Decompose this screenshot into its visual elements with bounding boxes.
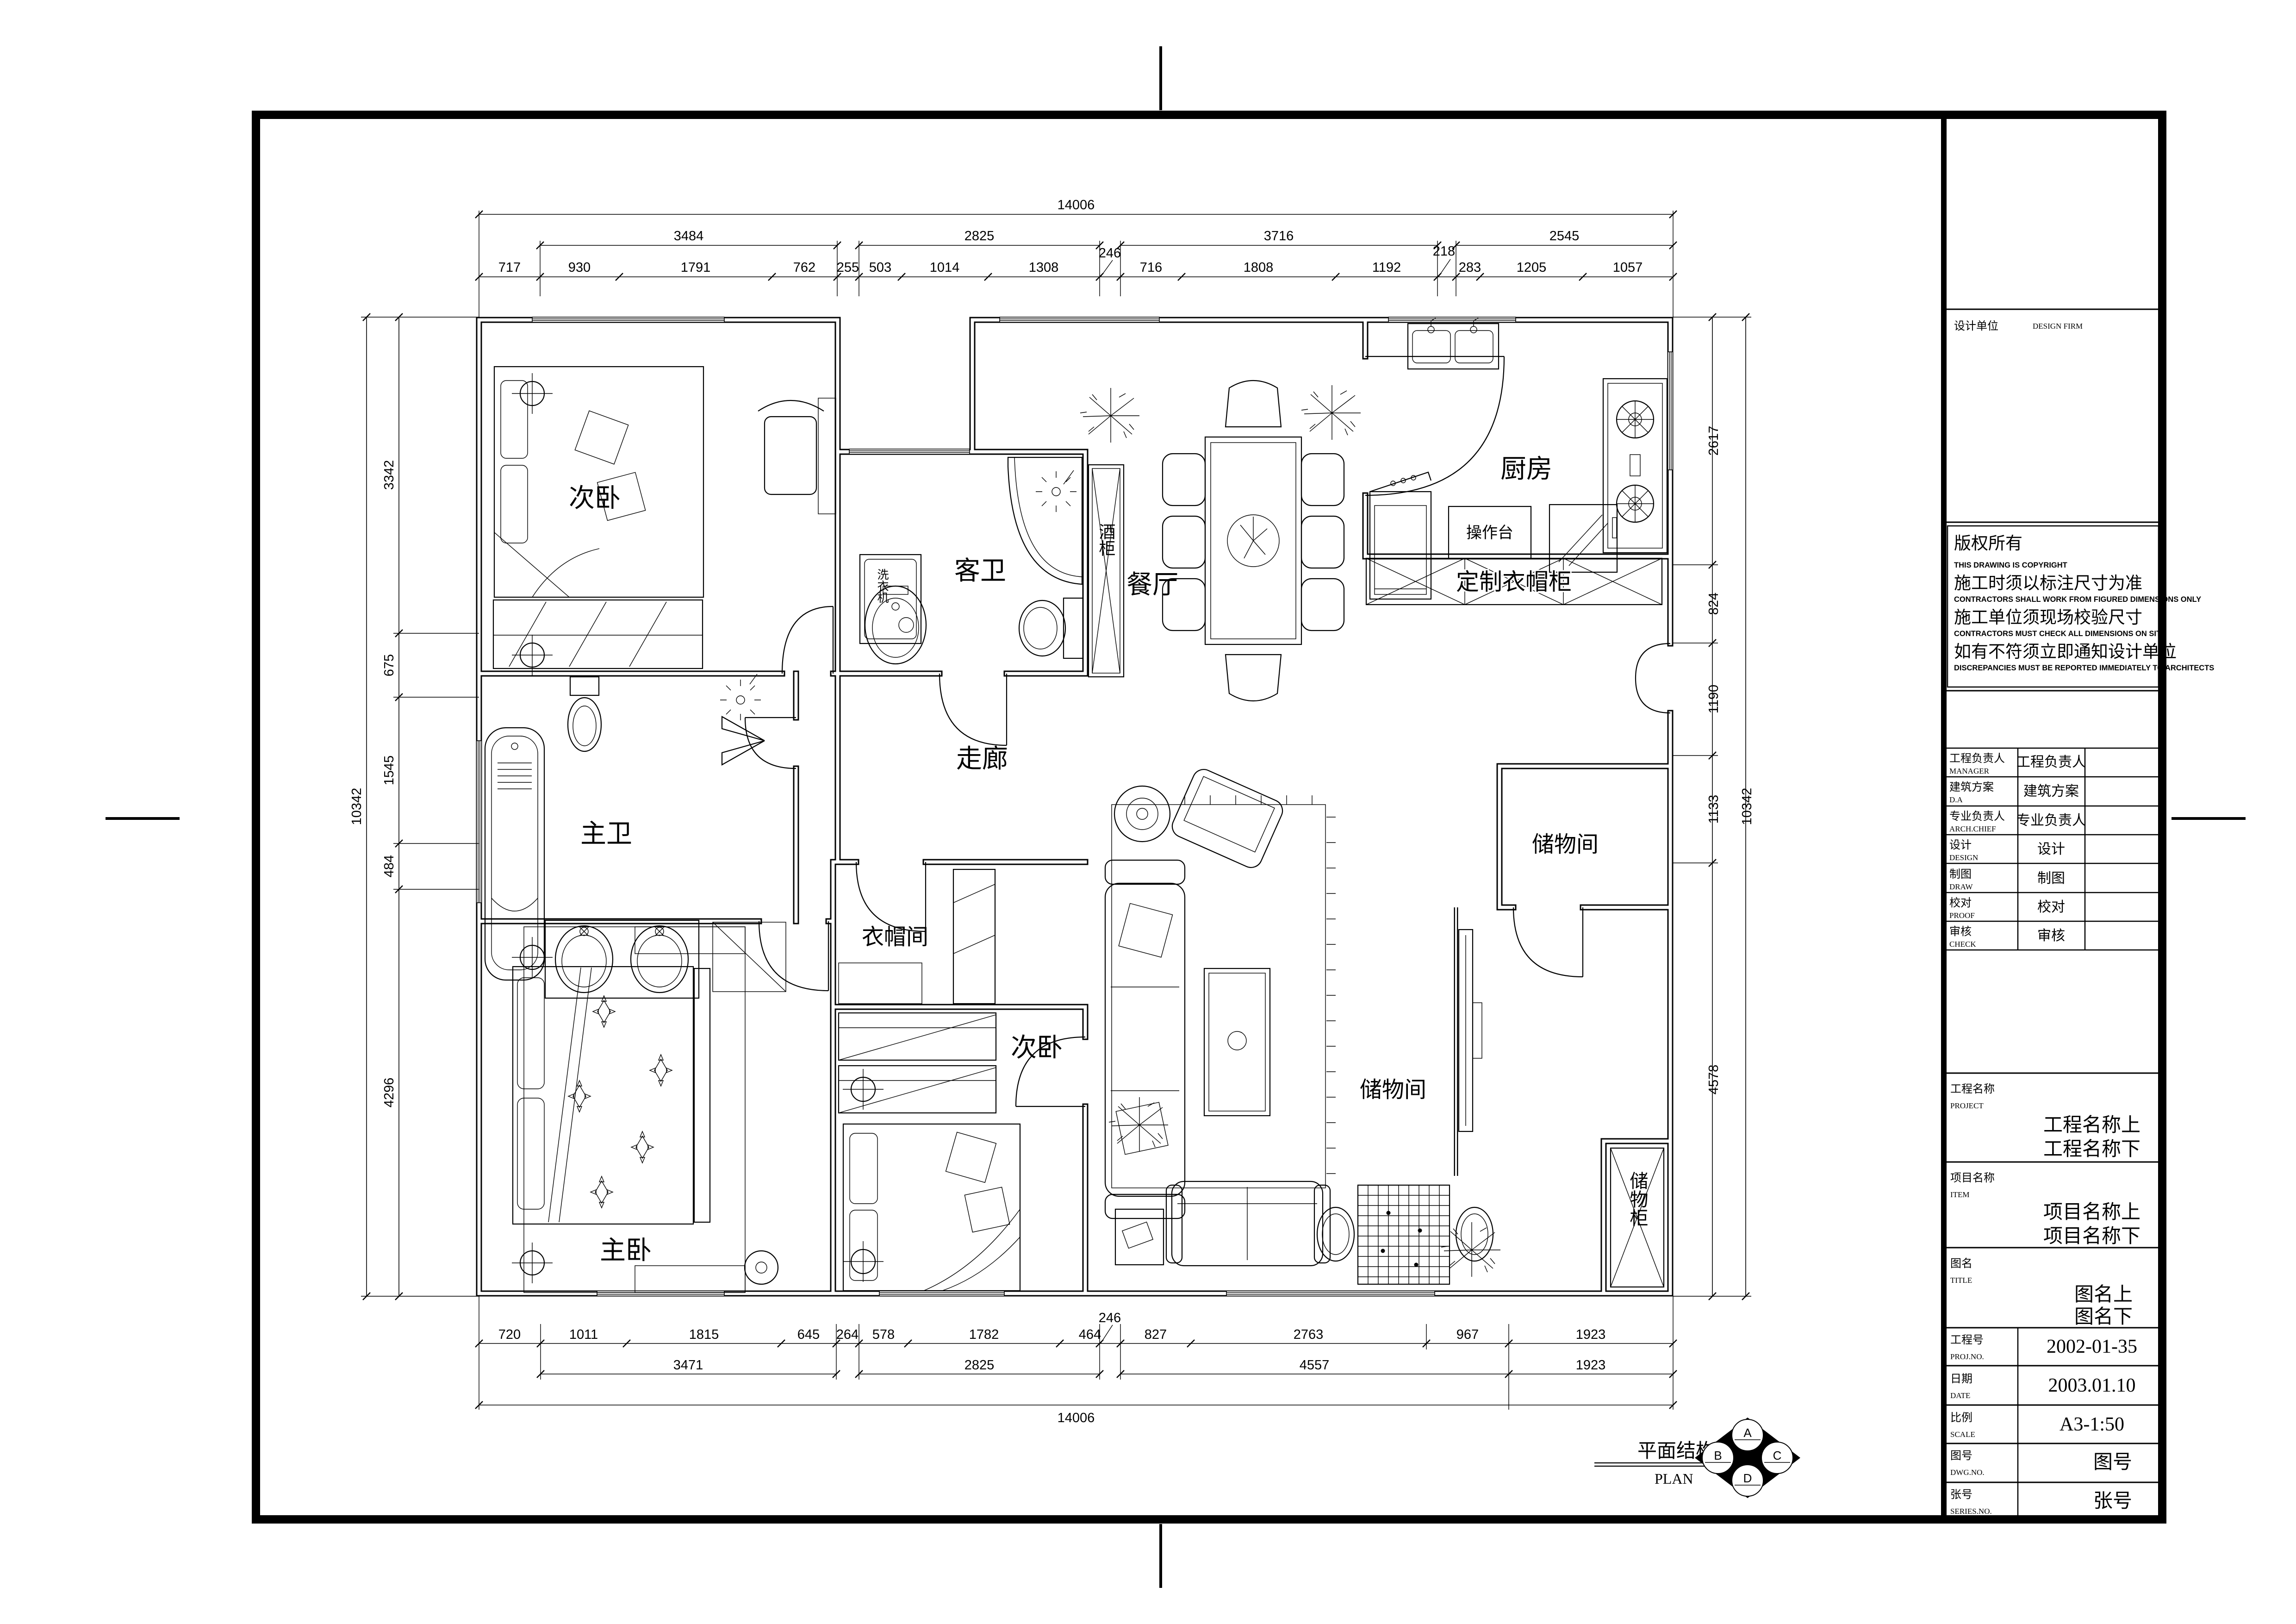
dim-text: 1923 (1576, 1358, 1606, 1373)
wardrobe-icon (839, 1013, 996, 1113)
wine-cabinet-icon: 酒柜 (1089, 465, 1124, 677)
role-value: 校对 (2037, 899, 2065, 915)
seriesno-row: 张号 SERIES.NO. 张号 (1950, 1488, 2132, 1516)
window-icon (1668, 352, 1673, 470)
role-zh: 建筑方案 (1949, 781, 1994, 793)
drawing-title-section: 图名 TITLE 图名上 图名下 (1950, 1257, 2133, 1328)
side-table-icon (1114, 786, 1170, 842)
loveseat-icon (1166, 1181, 1330, 1266)
dim-text: 3342 (382, 460, 397, 490)
copyright-en2: CONTRACTORS SHALL WORK FROM FIGURED DIME… (1954, 595, 2201, 604)
room-label-storage-tr: 储物间 (1532, 832, 1599, 857)
dim-text: 283 (1459, 260, 1481, 275)
dim-text: 255 (837, 260, 859, 275)
door-arc-guest-bath (940, 674, 1007, 745)
scale-en: SCALE (1950, 1430, 1975, 1439)
project-section: 工程名称 PROJECT 工程名称上 工程名称下 (1950, 1083, 2140, 1160)
furniture: 洗衣机 酒柜 (485, 318, 1667, 1293)
drawing-sheet: 洗衣机 酒柜 (0, 0, 2296, 1624)
fridge-icon (1549, 505, 1617, 572)
window-icon (1000, 317, 1159, 322)
storage-cabinet-label: 储物柜 (1627, 1171, 1649, 1227)
dim-text: 717 (498, 260, 521, 275)
desk-chair-icon (758, 398, 836, 514)
dim-text: 4578 (1706, 1065, 1721, 1095)
dim-text: 1815 (689, 1327, 719, 1342)
dim-text: 967 (1456, 1327, 1479, 1342)
role-en: MANAGER (1949, 767, 1990, 775)
roles-table: 工程负责人 MANAGER 工程负责人 建筑方案 D.A 建筑方案 专业负责人 … (1944, 748, 2162, 950)
stamp-logo: A B C D (1695, 1418, 1800, 1498)
dimensions-bottom: 720 1011 1815 645 264 578 1782 464 246 8… (475, 1296, 1677, 1425)
logo-letter: A (1743, 1426, 1752, 1440)
date-zh: 日期 (1950, 1373, 1972, 1385)
plan-stamp: 平面结构图 PLAN A B C D (1594, 1418, 1800, 1498)
copyright-en4: DISCREPANCIES MUST BE REPORTED IMMEDIATE… (1954, 664, 2214, 672)
title-block: 设计单位 DESIGN FIRM 版权所有 THIS DRAWING IS CO… (1944, 309, 2214, 1523)
dim-text: 2825 (964, 229, 995, 244)
dim-text: 1133 (1706, 795, 1721, 824)
role-en: DESIGN (1949, 853, 1978, 862)
scale-row: 比例 SCALE A3-1:50 (1950, 1412, 2124, 1439)
bed-icon (513, 967, 710, 1224)
column-markers (512, 373, 884, 1283)
logo-letter: B (1714, 1449, 1722, 1462)
dim-text: 14006 (1058, 198, 1095, 212)
design-firm-en: DESIGN FIRM (2033, 322, 2083, 331)
item-value-1: 项目名称上 (2043, 1202, 2140, 1223)
dim-text: 484 (382, 855, 397, 877)
dim-text: 827 (1145, 1327, 1167, 1342)
role-en: ARCH.CHIEF (1949, 824, 1996, 833)
dim-text: 720 (498, 1327, 521, 1342)
dim-text: 1782 (969, 1327, 999, 1342)
folding-door-icon (722, 717, 765, 765)
dim-text: 246 (1099, 1311, 1121, 1325)
stamp-title-en: PLAN (1655, 1470, 1693, 1487)
dim-text: 503 (869, 260, 891, 275)
bed-icon (843, 1124, 1020, 1291)
bathtub-icon (485, 728, 544, 980)
dim-text: 1808 (1244, 260, 1274, 275)
role-value: 设计 (2037, 842, 2065, 857)
title-en: TITLE (1950, 1276, 1972, 1285)
dim-text: 3716 (1264, 229, 1294, 244)
project-value-1: 工程名称上 (2043, 1115, 2140, 1136)
copyright-zh2: 施工时须以标注尺寸为准 (1954, 574, 2142, 593)
window-icon (849, 449, 970, 454)
projno-zh: 工程号 (1950, 1334, 1984, 1346)
date-row: 日期 DATE 2003.01.10 (1950, 1373, 2136, 1400)
wardrobe-icon (493, 600, 703, 668)
dim-text: 464 (1079, 1327, 1101, 1342)
window-icon (597, 1291, 724, 1296)
role-value: 制图 (2037, 871, 2065, 886)
role-value: 工程负责人 (2016, 755, 2086, 770)
dimensions-top: 14006 3484 2825 3716 2545 717 930 1791 7… (475, 198, 1677, 317)
dim-text: 246 (1099, 246, 1121, 261)
room-label-master-bedroom: 主卧 (600, 1237, 652, 1265)
title-value-2: 图名下 (2074, 1306, 2133, 1328)
counter-label: 操作台 (1466, 524, 1513, 542)
dim-text: 4557 (1300, 1358, 1330, 1373)
projno-value: 2002-01-35 (2047, 1336, 2137, 1357)
coffee-table-icon (1204, 968, 1270, 1116)
copyright-note: 版权所有 THIS DRAWING IS COPYRIGHT 施工时须以标注尺寸… (1948, 526, 2214, 687)
dim-text: 3471 (673, 1358, 703, 1373)
dim-text: 1308 (1029, 260, 1059, 275)
dim-text: 930 (568, 260, 591, 275)
dim-text: 645 (797, 1327, 820, 1342)
dimensions-left: 3342 675 1545 484 4296 10342 (349, 313, 479, 1300)
dim-text: 2617 (1706, 426, 1721, 456)
entry-double-door (1636, 643, 1670, 713)
date-value: 2003.01.10 (2048, 1375, 2136, 1396)
dim-text: 2825 (964, 1358, 995, 1373)
shower-head-icon (720, 674, 761, 720)
dim-text: 10342 (349, 788, 364, 825)
role-zh: 审核 (1949, 925, 1972, 938)
door-arc-master-bedroom (759, 921, 828, 991)
project-zh: 工程名称 (1950, 1083, 1995, 1095)
copyright-en1: THIS DRAWING IS COPYRIGHT (1954, 561, 2067, 569)
role-zh: 设计 (1949, 839, 1972, 851)
logo-letter: D (1743, 1471, 1752, 1485)
tv-icon (1459, 930, 1482, 1131)
dim-text: 1923 (1576, 1327, 1606, 1342)
dim-text: 1192 (1372, 260, 1401, 275)
toilet-icon (568, 677, 601, 751)
dim-text: 1205 (1517, 260, 1547, 275)
window-icon (879, 1291, 1004, 1296)
room-label-bedroom-b: 次卧 (1011, 1034, 1063, 1062)
role-value: 审核 (2037, 928, 2065, 943)
scale-zh: 比例 (1950, 1412, 1972, 1424)
pedestal-sink-icon (865, 586, 926, 664)
role-zh: 专业负责人 (1949, 810, 2005, 823)
dim-text: 578 (872, 1327, 895, 1342)
dim-text: 2763 (1294, 1327, 1324, 1342)
dim-text: 1057 (1613, 260, 1643, 275)
armchair-icon (1169, 766, 1286, 871)
room-label-corridor: 走廊 (956, 745, 1008, 774)
seriesno-en: SERIES.NO. (1950, 1507, 1992, 1516)
copyright-zh4: 如有不符须立即通知设计单位 (1954, 642, 2177, 662)
dining-table-icon (1163, 381, 1344, 701)
logo-letter: C (1773, 1449, 1782, 1462)
role-en: CHECK (1949, 940, 1976, 949)
project-en: PROJECT (1950, 1101, 1984, 1110)
item-value-2: 项目名称下 (2043, 1226, 2140, 1247)
date-en: DATE (1950, 1391, 1970, 1400)
item-en: ITEM (1950, 1190, 1970, 1199)
floor-plan-canvas: 洗衣机 酒柜 (0, 0, 2296, 1624)
room-label-kitchen: 厨房 (1500, 455, 1552, 484)
storage-cabinet-icon: 储物柜 (1611, 1148, 1664, 1287)
counter-icon: 操作台 (1449, 506, 1531, 558)
game-table-icon (1317, 1185, 1493, 1284)
room-label-storage-mid: 储物间 (1360, 1078, 1426, 1102)
room-label-cloakroom: 衣帽间 (862, 925, 928, 949)
door-arc-kitchen (1365, 356, 1504, 495)
dim-text: 2545 (1549, 229, 1580, 244)
seriesno-value: 张号 (2093, 1491, 2132, 1512)
room-label-dining: 餐厅 (1126, 571, 1178, 600)
shower-icon (1008, 457, 1082, 584)
double-sink-icon (545, 920, 786, 998)
dim-text: 4296 (382, 1078, 397, 1108)
dwgno-en: DWG.NO. (1950, 1468, 1985, 1477)
title-zh: 图名 (1950, 1257, 1972, 1270)
dwgno-value: 图号 (2093, 1452, 2132, 1473)
room-label-master-bath: 主卫 (580, 820, 632, 849)
project-value-2: 工程名称下 (2043, 1139, 2140, 1160)
item-zh: 项目名称 (1950, 1172, 1995, 1184)
projno-row: 工程号 PROJ.NO. 2002-01-35 (1950, 1334, 2137, 1361)
room-label-bedroom-tl: 次卧 (569, 484, 621, 513)
dim-text: 218 (1433, 244, 1455, 259)
windows (477, 317, 1673, 1296)
copyright-zh1: 版权所有 (1954, 534, 2022, 553)
dim-text: 10342 (1740, 788, 1755, 825)
door-arc-cloakroom (856, 862, 926, 931)
copyright-zh3: 施工单位须现场校验尺寸 (1954, 608, 2142, 627)
role-en: DRAW (1949, 882, 1973, 891)
window-icon (477, 741, 482, 903)
wine-cabinet-label: 酒柜 (1097, 523, 1116, 556)
dim-text: 716 (1140, 260, 1162, 275)
dishwasher-icon (1370, 472, 1431, 599)
dim-text: 3484 (674, 229, 704, 244)
role-zh: 制图 (1949, 868, 1972, 881)
dim-text: 1545 (382, 756, 397, 786)
window-icon (1226, 1291, 1435, 1296)
dim-text: 1190 (1706, 685, 1721, 713)
scale-value: A3-1:50 (2060, 1414, 2124, 1435)
window-icon (532, 317, 724, 322)
copyright-en3: CONTRACTORS MUST CHECK ALL DIMENSIONS ON… (1954, 630, 2166, 638)
door-arc-master-bath (745, 718, 796, 768)
role-zh: 校对 (1949, 897, 1972, 909)
door-arc-storage-tr (1513, 907, 1583, 977)
role-zh: 工程负责人 (1949, 752, 2005, 765)
stool-icon (745, 1251, 778, 1284)
sofa-icon (1105, 860, 1185, 1218)
dim-text: 264 (836, 1327, 859, 1342)
dimensions-right: 2617 824 1190 1133 4578 10342 (1673, 313, 1755, 1300)
item-section: 项目名称 ITEM 项目名称上 项目名称下 (1950, 1172, 2140, 1247)
custom-wardrobe-label: 定制衣帽柜 (1456, 569, 1572, 595)
rug-icon (1112, 795, 1336, 1188)
room-label-guest-bath: 客卫 (954, 557, 1006, 586)
dim-text: 675 (382, 654, 397, 676)
projno-en: PROJ.NO. (1950, 1352, 1984, 1361)
walls (479, 320, 1670, 1293)
window-icon (1388, 317, 1516, 322)
role-en: D.A (1949, 795, 1963, 804)
role-value: 专业负责人 (2016, 813, 2086, 828)
end-table-icon (1115, 1209, 1164, 1265)
dim-text: 762 (793, 260, 815, 275)
title-value-1: 图名上 (2074, 1284, 2133, 1305)
dim-text: 14006 (1058, 1411, 1095, 1425)
dwgno-zh: 图号 (1950, 1450, 1972, 1462)
dim-text: 824 (1706, 593, 1721, 615)
dwgno-row: 图号 DWG.NO. 图号 (1950, 1450, 2132, 1477)
dim-text: 1014 (930, 260, 960, 275)
role-value: 建筑方案 (2023, 784, 2079, 799)
toilet-icon (1019, 598, 1083, 658)
door-arc-bedroom-tl (782, 606, 833, 674)
dim-text: 1791 (681, 260, 711, 275)
design-firm-zh: 设计单位 (1954, 320, 1998, 332)
kitchen-sink-icon (1408, 318, 1499, 369)
bed-icon (494, 367, 703, 597)
seriesno-zh: 张号 (1950, 1488, 1972, 1501)
custom-wardrobe-icon: 定制衣帽柜 (1366, 558, 1662, 605)
dim-text: 1011 (569, 1327, 598, 1342)
role-en: PROOF (1949, 911, 1975, 920)
